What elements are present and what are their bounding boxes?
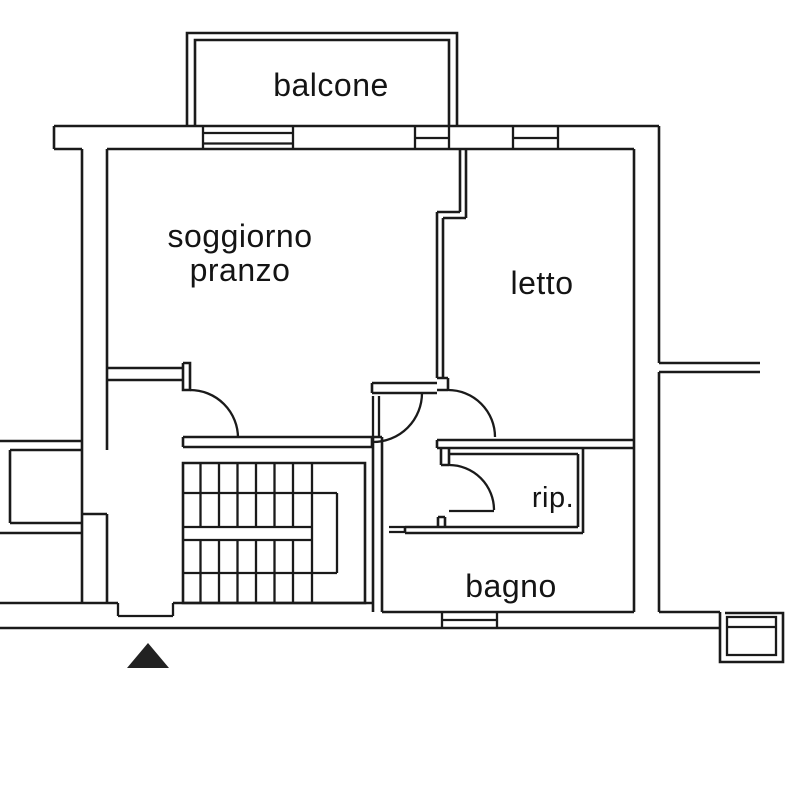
bedroom-south-wall	[437, 440, 634, 448]
neighbor-balcony	[720, 612, 783, 662]
bathroom-window	[442, 612, 497, 628]
entrance-threshold	[118, 603, 173, 616]
living-room-label-line2: pranzo	[190, 252, 291, 288]
bottom-exterior-wall	[0, 603, 720, 628]
corridor-door-leaf	[373, 396, 379, 437]
entrance-marker-icon	[127, 643, 169, 668]
bathroom-west-wall	[373, 437, 382, 612]
top-exterior-wall	[54, 126, 659, 149]
right-exterior-wall	[634, 126, 659, 612]
bedroom-label: letto	[511, 265, 574, 301]
storage-door-arc	[449, 465, 494, 511]
living-south-wall	[107, 363, 190, 390]
corridor-north-wall	[372, 383, 437, 393]
staircase	[183, 463, 365, 603]
bedroom-west-wall	[437, 149, 466, 390]
balcony-window	[203, 126, 293, 149]
radiator-symbol	[389, 527, 405, 532]
corridor-door-arc	[373, 393, 422, 442]
living-room-label-line1: soggiorno	[167, 218, 312, 254]
floor-plan-drawing: balcone soggiorno pranzo letto rip. bagn…	[0, 0, 800, 800]
window-bedroom	[513, 126, 558, 149]
entrance-door-arc	[190, 390, 238, 438]
bathroom-label: bagno	[465, 568, 556, 604]
hall-north-wall	[183, 437, 372, 447]
balcony-label: balcone	[273, 67, 389, 103]
floor-plan: balcone soggiorno pranzo letto rip. bagn…	[0, 0, 800, 800]
window-living	[415, 126, 449, 149]
storage-label: rip.	[532, 482, 574, 514]
right-wall-stub	[659, 363, 760, 372]
left-exterior-wall	[0, 149, 107, 603]
bedroom-door-arc	[448, 390, 495, 437]
